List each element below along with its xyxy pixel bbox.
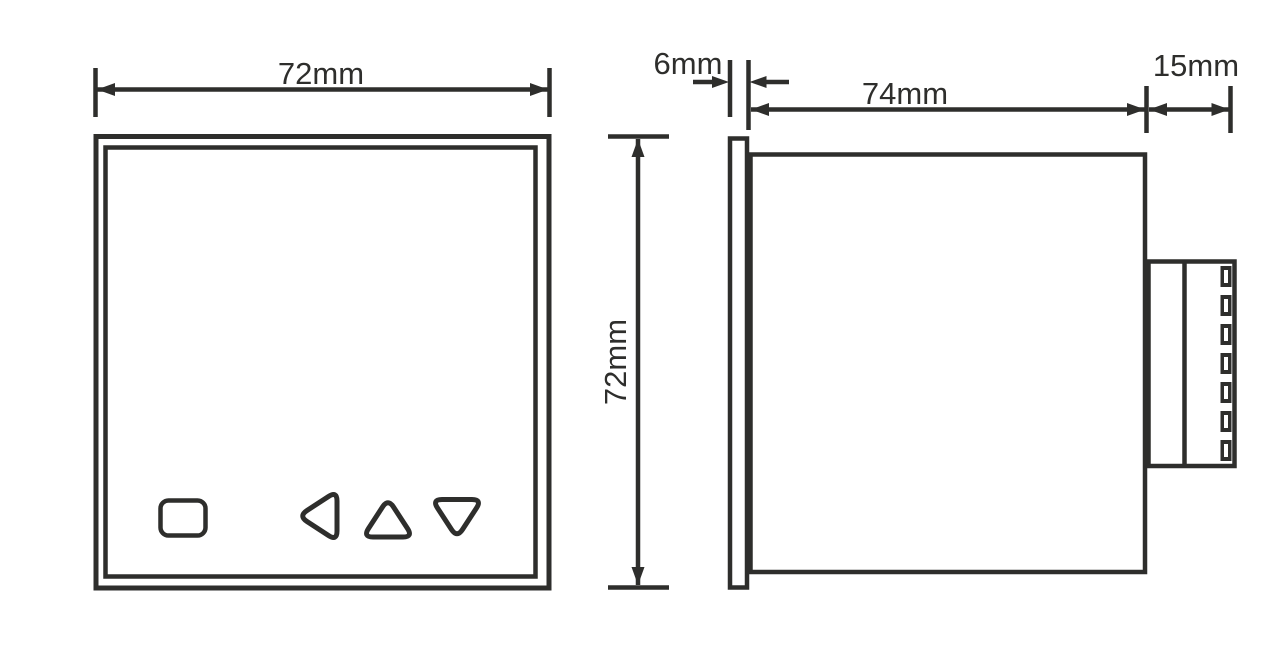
- body-depth-label: 74mm: [862, 76, 948, 111]
- body-depth-dimension: 74mm: [751, 76, 1147, 133]
- arrowhead-right-icon: [1127, 103, 1145, 116]
- side-body: [751, 155, 1146, 573]
- square-button-icon: [161, 501, 206, 536]
- terminal-depth-dimension: 15mm: [1149, 48, 1239, 133]
- arrowhead-left-icon: [1149, 103, 1167, 116]
- arrowhead-left-icon: [751, 103, 769, 116]
- arrowhead-up-icon: [632, 139, 645, 157]
- arrowhead-down-icon: [632, 567, 645, 585]
- arrowhead-left-icon: [750, 76, 767, 88]
- front-width-label: 72mm: [278, 56, 364, 91]
- terminal-screw-slot: [1224, 270, 1228, 283]
- terminal-screw-slot: [1224, 386, 1228, 399]
- front-outer-frame: [96, 137, 549, 589]
- panel-meter-dimension-drawing: 72mm 72mm 6mm: [0, 0, 1284, 648]
- terminal-screw-slot: [1224, 444, 1228, 457]
- down-arrow-button-icon: [436, 500, 479, 534]
- side-view: [730, 139, 1235, 588]
- arrowhead-left-icon: [97, 83, 115, 96]
- terminal-screws: [1221, 266, 1232, 461]
- up-arrow-button-icon: [367, 503, 410, 537]
- terminal-screw-slot: [1224, 415, 1228, 428]
- front-view: [96, 137, 549, 589]
- terminal-screw-slot: [1224, 299, 1228, 312]
- arrowhead-right-icon: [530, 83, 548, 96]
- bezel-depth-dimension: 6mm: [654, 46, 789, 130]
- front-height-dimension: 72mm: [598, 137, 669, 588]
- left-arrow-button-icon: [303, 495, 337, 538]
- side-front-bezel: [730, 139, 747, 588]
- dimension-diagram: 72mm 72mm 6mm: [0, 0, 1284, 648]
- bezel-depth-label: 6mm: [654, 46, 723, 81]
- front-button-row: [161, 495, 479, 538]
- terminal-depth-label: 15mm: [1153, 48, 1239, 83]
- terminal-screw-slot: [1224, 357, 1228, 370]
- front-width-dimension: 72mm: [96, 56, 550, 117]
- terminal-screw-slot: [1224, 328, 1228, 341]
- arrowhead-right-icon: [1212, 103, 1230, 116]
- front-height-label: 72mm: [598, 319, 633, 405]
